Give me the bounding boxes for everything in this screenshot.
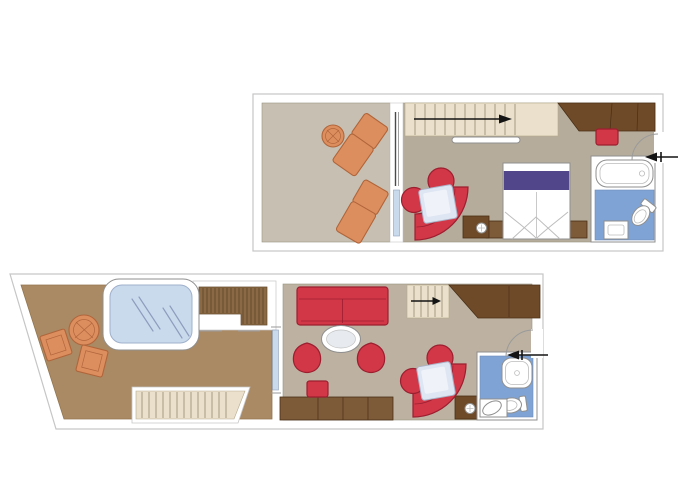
balcony-side-table (322, 125, 344, 147)
upper-balcony-sliding-door (390, 103, 403, 242)
upper-ottoman (596, 129, 618, 145)
whirlpool (103, 279, 199, 350)
desk (280, 397, 393, 420)
lower-bathroom (477, 352, 537, 420)
floor-plan-image (0, 0, 680, 486)
nightstand-right (570, 221, 587, 238)
bed-runner (504, 171, 569, 190)
glass-panel (394, 190, 400, 236)
upper-nook-table (418, 184, 457, 223)
handrail (452, 137, 520, 143)
bathtub (596, 160, 653, 187)
terrace-deck-stairs (193, 281, 276, 331)
glass-panel (273, 330, 279, 390)
terrace-chair-2 (76, 345, 109, 378)
floor-plan-drawing (0, 0, 680, 486)
tub-chair-left (293, 343, 320, 373)
cabinet-dial-icon (465, 404, 475, 414)
desk-stool (307, 381, 328, 397)
upper-staircase (405, 103, 558, 136)
shower (502, 358, 532, 388)
lower-floor-plan (10, 274, 548, 429)
cabinet-dial-icon (477, 223, 487, 233)
upper-bathroom (591, 156, 657, 242)
lower-nook-table (416, 361, 455, 400)
lower-staircase (407, 285, 449, 318)
terrace-table (69, 315, 99, 345)
upper-washbasin (604, 221, 628, 239)
lower-washbasin (480, 398, 507, 418)
upper-floor-plan (253, 94, 678, 251)
terrace-steps (132, 387, 250, 423)
coffee-table (322, 326, 361, 353)
tub-chair-right (357, 343, 384, 373)
living-sofa (297, 287, 388, 325)
